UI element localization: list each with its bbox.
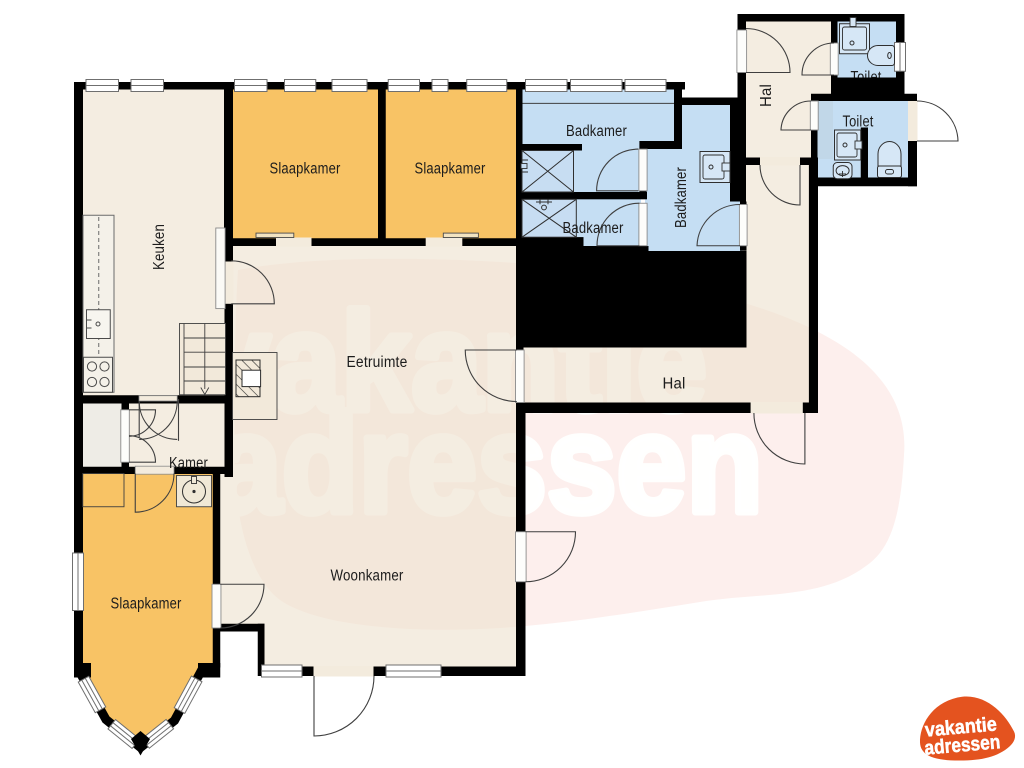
svg-text:Woonkamer: Woonkamer [331, 568, 404, 585]
svg-text:Badkamer: Badkamer [673, 167, 690, 228]
svg-text:Keuken: Keuken [151, 224, 168, 270]
svg-text:Badkamer: Badkamer [563, 220, 624, 237]
svg-text:Toilet: Toilet [843, 114, 874, 131]
svg-text:Slaapkamer: Slaapkamer [270, 161, 341, 178]
svg-text:Badkamer: Badkamer [566, 123, 627, 140]
svg-text:Slaapkamer: Slaapkamer [111, 596, 182, 613]
svg-text:Slaapkamer: Slaapkamer [415, 161, 486, 178]
svg-text:Hal: Hal [663, 376, 686, 393]
svg-text:Hal: Hal [758, 84, 775, 107]
svg-text:Kamer: Kamer [169, 455, 208, 472]
svg-text:Eetruimte: Eetruimte [347, 354, 408, 371]
